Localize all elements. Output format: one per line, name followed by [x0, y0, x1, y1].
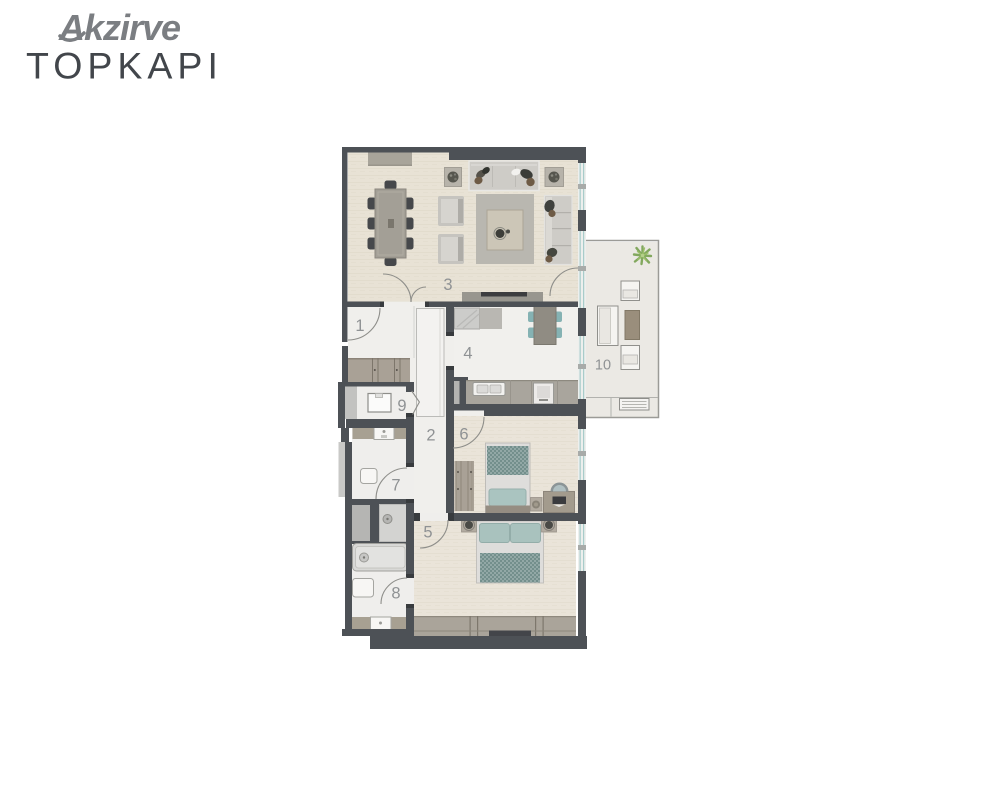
svg-text:7: 7 — [391, 477, 400, 495]
svg-text:5: 5 — [423, 524, 432, 542]
svg-text:TOPKAPI: TOPKAPI — [26, 45, 223, 87]
svg-text:6: 6 — [459, 426, 468, 444]
svg-text:10: 10 — [595, 358, 611, 374]
svg-text:8: 8 — [391, 585, 400, 603]
svg-text:2: 2 — [426, 427, 435, 445]
svg-text:Akzirve: Akzirve — [58, 7, 181, 48]
svg-text:9: 9 — [397, 397, 406, 415]
svg-text:4: 4 — [463, 345, 472, 363]
svg-text:3: 3 — [443, 276, 452, 294]
svg-text:1: 1 — [355, 317, 364, 335]
